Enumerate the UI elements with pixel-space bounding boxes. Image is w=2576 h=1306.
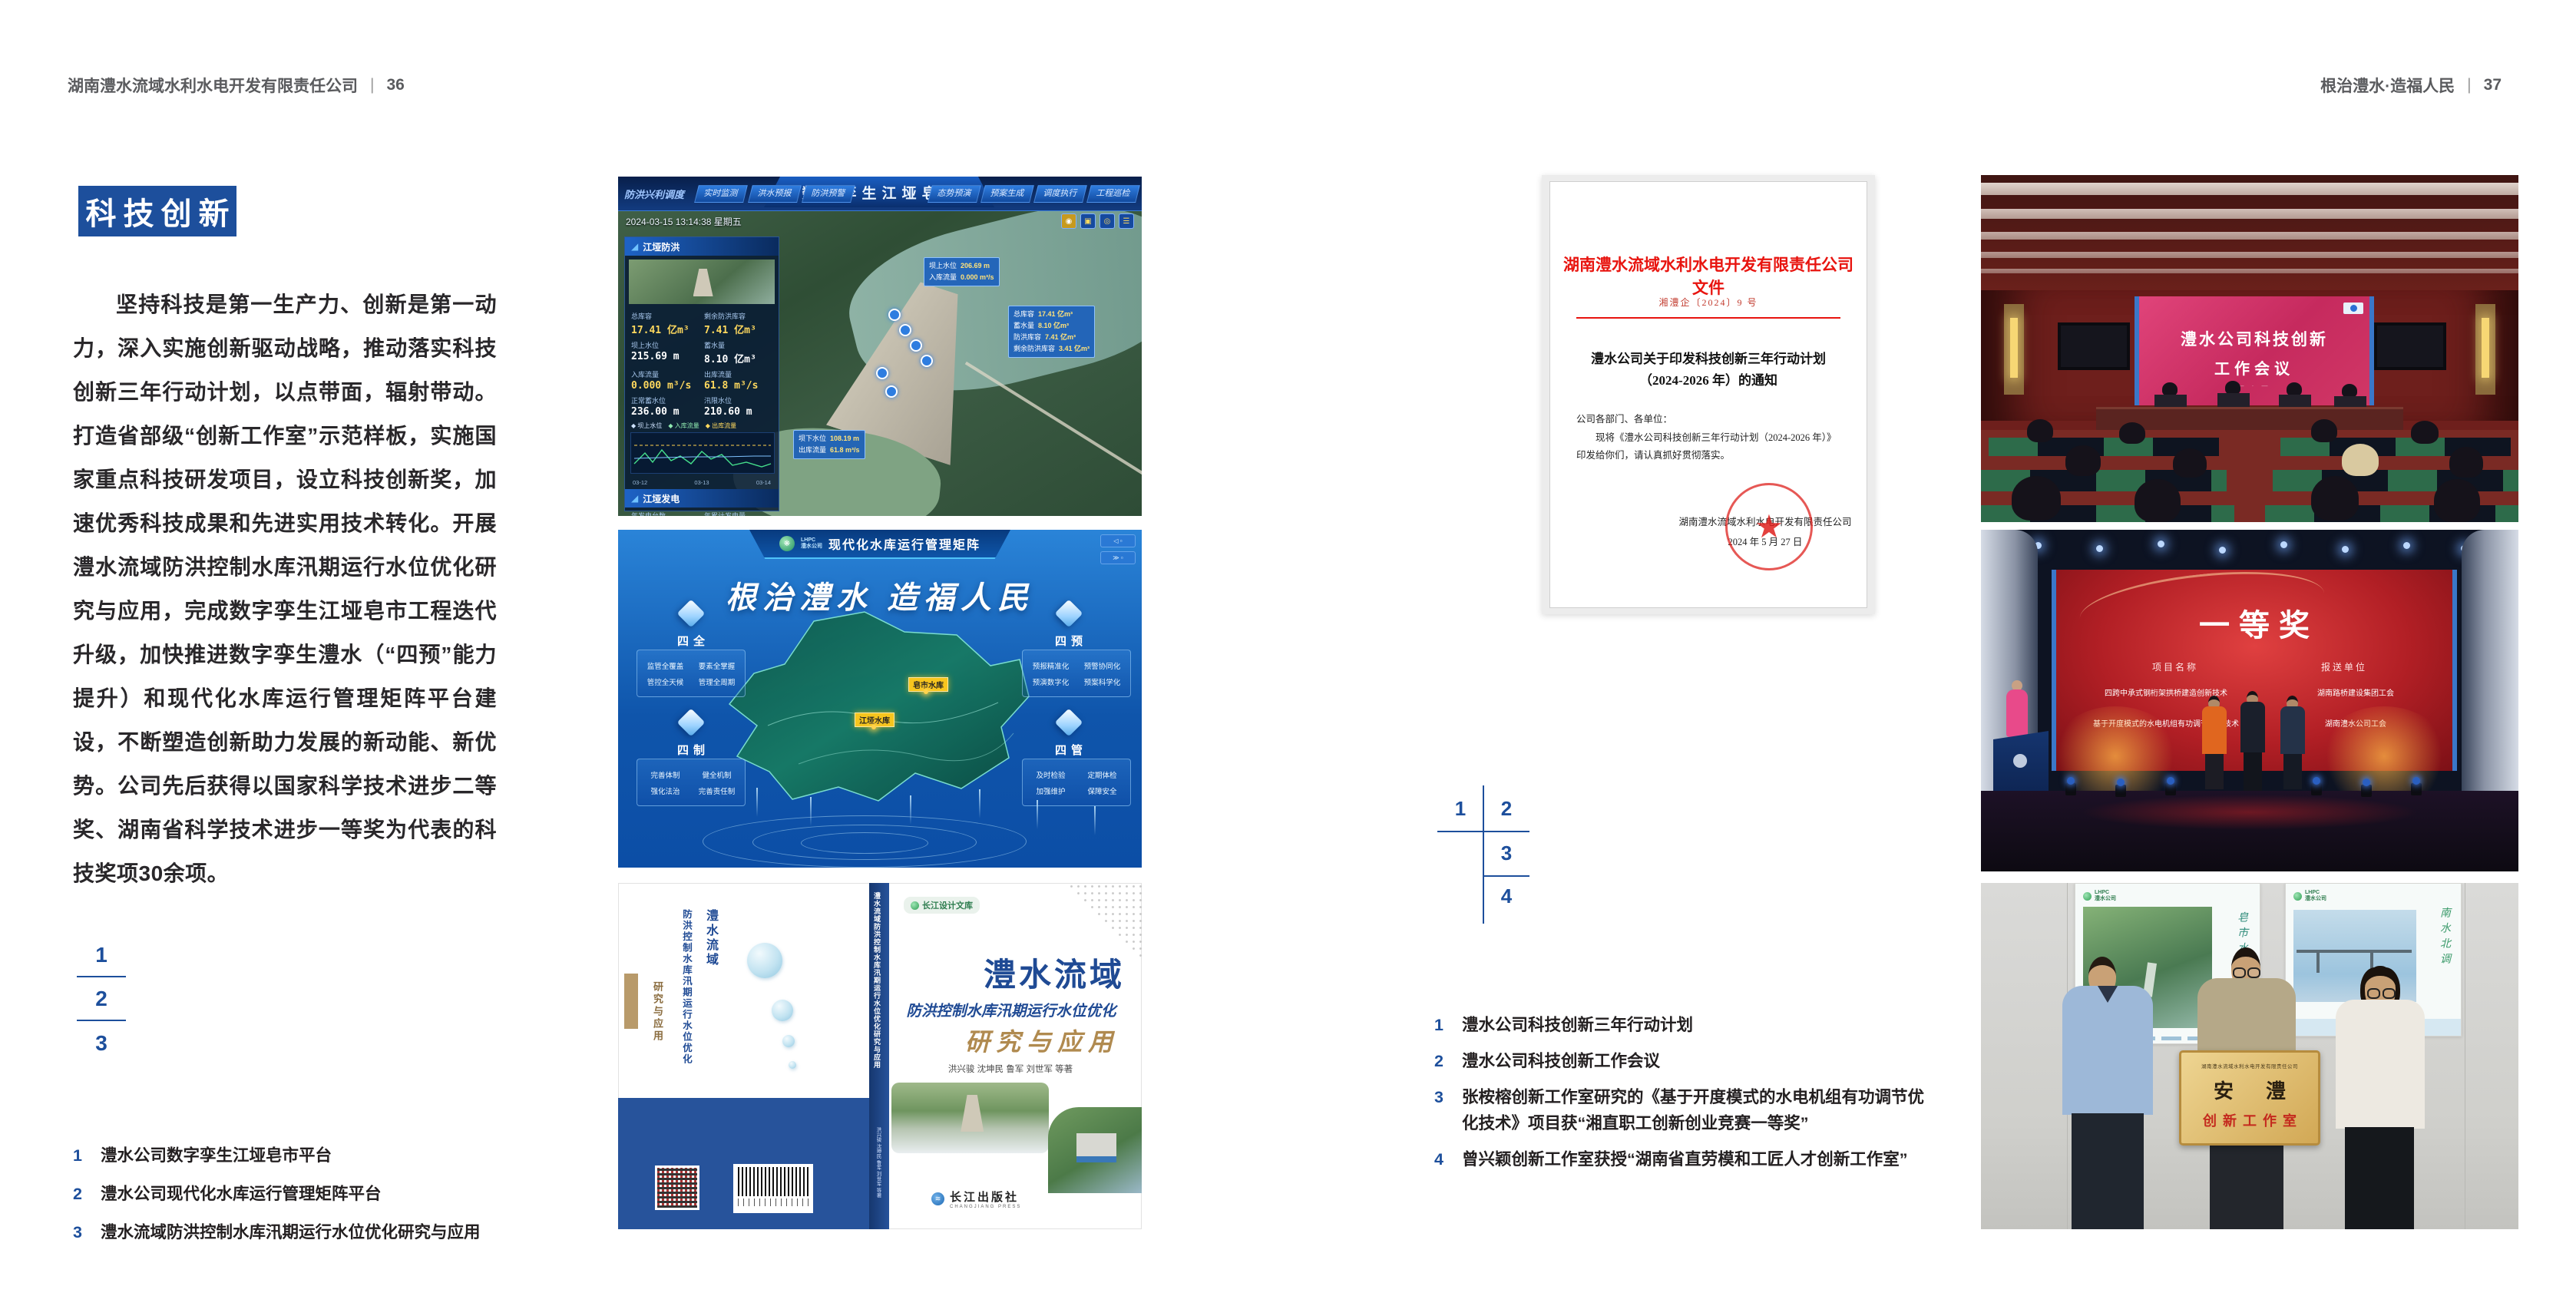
stat-value: 215.69 m [631,351,699,362]
document-salutation: 公司各部门、各单位： [1576,411,1840,428]
book-authors: 洪兴骏 沈坤民 鲁军 刘世军 等著 [888,1063,1133,1075]
poster-bridge-image [2293,910,2416,1002]
plaque-company-line: 湖南澧水流域水利水电开发有限责任公司 [2181,1062,2318,1070]
figure-index-2: 2 [86,987,117,1011]
siguan-icon [1055,709,1083,737]
person-right-shirt [2336,1000,2425,1129]
caption-number: 3 [73,1219,90,1245]
spine-title: 澧水流域防洪控制水库汛期运行水位优化研究与应用 [872,892,882,1122]
dam-thumbnail [629,260,775,304]
barcode [733,1164,813,1213]
lhpc-logo-icon: ❋ [779,536,795,551]
company-name: 湖南澧水流域水利水电开发有限责任公司 [68,74,358,97]
stat-label: 年发电台数 [631,511,699,516]
right-page-header: 根治澧水·造福人民 | 37 [2320,74,2502,97]
lhpc-logo-text: LHPC澧水公司 [801,537,822,550]
index-divider [77,976,126,977]
figure-index-3: 3 [1493,841,1520,865]
stat-value: 236.00 m [631,406,699,418]
caption-text: 澧水公司数字孪生江垭皂市平台 [101,1142,332,1169]
audience-desk-row [2265,505,2518,522]
flood-stats: 总库容17.41 亿m³ 剩余防洪库容7.41 亿m³ 坝上水位215.69 m… [625,308,779,421]
water-droplet [772,1000,793,1021]
photo-innovation-studio-plaque: LHPC澧水公司 皂市水库 LHPC澧水公司 南水北调 [1981,883,2518,1229]
screen-button-icon: ≫ ▫ [1100,551,1136,564]
awardee-legs [2205,754,2224,789]
cover-dam-photo [891,1083,1049,1153]
twin-tabs-right: 态势预演 预案生成 调度执行 工程巡检 [930,185,1138,203]
plaque-subtitle: 创新工作室 [2181,1110,2318,1130]
menu-icon: ☰ [1119,213,1134,229]
matrix-buttons: ◁ ▫ ≫ ▫ [1100,534,1136,564]
award-row-unit: 湖南路桥建设集团工会 [2287,686,2425,698]
gate-marker-dot [876,367,888,379]
legend-item: ◆ 坝上水位 [631,422,662,430]
gate-marker-dot [910,339,922,352]
stat-label: 坝上水位 [631,340,699,350]
upstream-tooltip: 坝上水位206.69 m 入库流量0.000 m³/s [924,257,1000,286]
tab-situation-rehearsal: 态势预演 [928,185,981,203]
group-name-siquan: 四全 [653,633,729,649]
body-paragraph: 坚持科技是第一生产力、创新是第一动力，深入实施创新驱动战略，推动落实科技创新三年… [73,283,497,895]
publisher-name-en: CHANGJIANG PRESS [950,1205,1021,1209]
wall-lamp [2010,318,2018,378]
page-number-left: 36 [386,76,404,94]
wall-tv [2374,322,2446,370]
wall-pillar [2475,304,2495,395]
meeting-screen-line2: 工作会议 [2139,356,2369,379]
wall-tv [2058,322,2130,370]
tab-realtime-monitoring: 实时监测 [694,185,748,203]
stat-label: 出库流量 [704,369,772,379]
innovation-studio-plaque: 湖南澧水流域水利水电开发有限责任公司 安澧 创新工作室 [2179,1050,2320,1146]
chart-x-axis: 03-12 03-13 03-14 [625,479,779,486]
header-separator: | [370,76,374,94]
award-title: 一等奖 [2056,600,2452,645]
gate-marker-dot [899,324,911,336]
flood-panel-title: 江垭防洪 [643,240,680,253]
award-col-project: 项目名称 [2102,660,2248,673]
matrix-title: 现代化水库运行管理矩阵 [828,534,980,553]
back-title-line2: 防洪控制水库汛期运行水位优化 [680,909,694,1093]
lhpc-logo-icon [2083,892,2092,901]
caption-item: 1 澧水公司科技创新三年行动计划 [1434,1012,1945,1038]
floor-reflection [2081,795,2419,830]
twin-hud-icons: ◉ ▣ ◎ ☰ [1061,213,1134,229]
stat-label: 蓄水量 [704,340,772,350]
host-figure [2006,689,2028,737]
tab-dispatch-execution: 调度执行 [1033,185,1087,203]
figure-digital-twin-platform: 数字孪生江垭皂市 防洪兴利调度 实时监测 洪水预报 防洪预警 态势预演 预案生成… [618,177,1142,516]
water-droplet [747,943,782,978]
glasses-icon [2247,967,2260,978]
gate-marker-dot [921,355,933,367]
group-panel-sizhi: 完善体制健全机制 强化法治完善责任制 [637,759,746,806]
road [965,362,1142,486]
meeting-screen-line1: 澧水公司科技创新 [2139,327,2369,350]
caption-text: 澧水公司科技创新工作会议 [1462,1048,1660,1074]
photo-innovation-meeting: 澧水公司科技创新 工作会议 — · — [1981,175,2518,522]
group-name-sizhi: 四制 [653,742,729,758]
wall-lamp [2482,318,2489,378]
gate-marker-dot [885,385,898,398]
glasses-icon [2367,988,2380,999]
stat-value: 61.8 m³/s [704,380,772,392]
book-title-sub: 防洪控制水库汛期运行水位优化 [888,998,1134,1020]
person-right-trousers [2345,1127,2414,1229]
group-panel-siyu: 预报精准化预警协同化 预演数字化预案科学化 [1022,650,1131,697]
matrix-topbar: ❋ LHPC澧水公司 现代化水库运行管理矩阵 [749,530,1010,559]
caption-number: 1 [1434,1012,1451,1038]
document-title-line1: 澧水公司关于印发科技创新三年行动计划 [1566,348,1851,367]
awardee-navy [2280,706,2305,754]
section-title: 科技创新 [78,186,236,236]
water-droplet [782,1035,795,1047]
caption-number: 2 [1434,1048,1451,1074]
page-number-right: 37 [2484,76,2502,94]
panel-icon: ◢ [631,493,638,504]
x-tick: 03-13 [694,479,709,486]
figure-index-2: 2 [1493,797,1520,821]
caption-item: 2 澧水公司科技创新工作会议 [1434,1048,1945,1074]
twin-corner-label: 防洪兴利调度 [624,187,684,201]
awardee-orange [2202,706,2227,754]
x-tick: 03-12 [633,479,647,486]
stat-value: 7.41 亿m³ [704,322,772,336]
power-stats: 年发电台数6.3000 年累计发电量1.2907 月累计发电量3359.21 当… [625,508,779,516]
user-icon: ◉ [1061,213,1076,229]
right-captions: 1 澧水公司科技创新三年行动计划 2 澧水公司科技创新工作会议 3 张桉榕创新工… [1434,1012,1945,1185]
presenter-suit [2240,702,2265,752]
capacity-tooltip: 总库容17.41 亿m³ 蓄水量8.10 亿m³ 防洪库容7.41 亿m³ 剩余… [1008,306,1095,358]
awardee-legs [2283,754,2302,789]
award-col-unit: 报送单位 [2279,660,2409,673]
publisher-icon: ≋ [931,1192,944,1205]
lhpc-logo: LHPC澧水公司 [2083,890,2116,902]
header-separator: | [2467,76,2471,94]
figure-official-document: 湖南澧水流域水利水电开发有限责任公司文件 湘澧企〔2024〕9 号 澧水公司关于… [1542,175,1875,614]
figure-index-3: 3 [86,1031,117,1056]
series-badge-text: 长江设计文库 [922,899,973,911]
stat-label: 年累计发电量 [704,511,772,516]
twin-tabs-left: 实时监测 洪水预报 防洪预警 [696,185,853,203]
gate-marker-dot [888,309,901,321]
caption-item: 4 曾兴颖创新工作室获授“湖南省直劳模和工匠人才创新工作室” [1434,1146,1945,1172]
figure-book-cover: 澧水流域 防洪控制水库汛期运行水位优化 研究与应用 澧水流域防洪控制水库汛期运行… [618,883,1142,1229]
poster-right-caption: 南水北调 [2436,907,2452,1007]
twin-timestamp: 2024-03-15 13:14:38 星期五 [626,215,742,228]
left-captions: 1 澧水公司数字孪生江垭皂市平台 2 澧水公司现代化水库运行管理矩阵平台 3 澧… [73,1142,541,1258]
chart-legend: ◆ 坝上水位 ◆ 入库流量 ◆ 出库流量 [625,421,779,431]
legend-item: ◆ 出库流量 [706,422,736,430]
ripple-ring [801,832,928,854]
document-heading: 湖南澧水流域水利水电开发有限责任公司文件 [1558,253,1859,299]
back-title-line1: 澧水流域 [701,909,719,1086]
caption-item: 3 张桉榕创新工作室研究的《基于开度模式的水电机组有功调节优化技术》项目获“湘直… [1434,1084,1945,1136]
seal-star-icon: ★ [1754,508,1784,546]
glasses-icon [2233,967,2246,978]
spine-authors: 洪兴骏 沈坤民 鲁军 刘世军 等著 [874,1127,881,1204]
cover-dam-photo-2 [1048,1107,1142,1193]
caption-number: 1 [73,1142,90,1169]
person-left-trousers [2072,1113,2144,1229]
stat-label: 入库流量 [631,369,699,379]
audience-desk-row [2273,470,2518,491]
caption-text: 张桉榕创新工作室研究的《基于开度模式的水电机组有功调节优化技术》项目获“湘直职工… [1462,1084,1938,1136]
tab-project-inspection: 工程巡检 [1086,185,1140,203]
group-name-siyu: 四预 [1030,633,1107,649]
figure-index-1: 1 [86,943,117,967]
award-row-project: 四跨中承式钢桁架拱桥建造创新技术 [2070,686,2262,698]
lhpc-logo: LHPC澧水公司 [2293,890,2326,902]
document-body: 现将《澧水公司科技创新三年行动计划（2024-2026 年）》印发给你们，请认真… [1576,429,1840,465]
book-title-main: 澧水流域 [894,949,1125,996]
document-rule [1576,317,1840,319]
glasses-icon [2383,988,2396,999]
back-tan-block [624,974,638,1029]
index-divider [1437,831,1529,832]
caption-text: 曾兴颖创新工作室获授“湖南省直劳模和工匠人才创新工作室” [1462,1146,1908,1172]
document-title-line2: （2024-2026 年）的通知 [1566,369,1851,388]
stat-label: 正常蓄水位 [631,395,699,405]
tab-flood-warning: 防洪预警 [802,185,855,203]
layers-icon: ▣ [1080,213,1096,229]
official-seal: ★ [1725,483,1813,570]
caption-number: 2 [73,1181,90,1207]
downstream-tooltip: 坝下水位108.19 m 出库流量61.8 m³/s [793,430,865,459]
series-badge: 长江设计文库 [904,897,980,914]
presenter-legs [2244,752,2262,791]
water-level-chart [630,432,775,474]
document-paper: 湖南澧水流域水利水电开发有限责任公司文件 湘澧企〔2024〕9 号 澧水公司关于… [1549,181,1867,608]
caption-item: 1 澧水公司数字孪生江垭皂市平台 [73,1142,541,1169]
lhpc-logo-icon [2293,892,2302,901]
publisher-logo: ≋ 长江出版社 CHANGJIANG PRESS [931,1189,1021,1209]
locate-icon: ◎ [1100,213,1115,229]
reservoir-marker-zaoshi: 皂市水库 [908,677,948,692]
tab-flood-forecast: 洪水预报 [748,185,802,203]
stat-label: 总库容 [631,311,699,321]
tab-plan-generation: 预案生成 [980,185,1034,203]
stat-value: 17.41 亿m³ [631,322,699,336]
index-divider [77,1020,126,1021]
caption-text: 澧水公司现代化水库运行管理矩阵平台 [101,1181,382,1207]
caption-text: 澧水流域防洪控制水库汛期运行水位优化研究与应用 [101,1219,481,1245]
group-panel-siquan: 监管全覆盖要素全掌握 管控全天候管理全周期 [637,650,746,697]
figure-index-4: 4 [1493,884,1520,908]
figure-matrix-platform: ❋ LHPC澧水公司 现代化水库运行管理矩阵 ◁ ▫ ≫ ▫ 根治澧水 造福人民… [618,530,1142,868]
stat-value: 210.60 m [704,406,772,418]
x-tick: 03-14 [756,479,771,486]
caption-number: 4 [1434,1146,1451,1172]
marker-dot [871,725,876,729]
index-divider [1483,875,1529,877]
panel-icon: ◢ [631,241,638,252]
group-name-siguan: 四管 [1030,742,1107,758]
plaque-name: 安澧 [2181,1076,2318,1104]
screen-logo [2343,303,2363,314]
left-page-header: 湖南澧水流域水利水电开发有限责任公司 | 36 [68,74,405,97]
wall-joint [2465,883,2465,1229]
person-left-shirt [2062,986,2153,1115]
stat-value: 0.000 m³/s [631,380,699,392]
marker-dot [924,689,928,694]
basin-map [722,610,1038,802]
screen-button-icon: ◁ ▫ [1100,534,1136,547]
figure-index-1: 1 [1447,797,1474,821]
qr-code [655,1165,699,1210]
power-panel-title: 江垭发电 [643,492,680,505]
flood-panel: ◢ 江垭防洪 总库容17.41 亿m³ 剩余防洪库容7.41 亿m³ 坝上水位2… [624,236,779,511]
series-logo-icon [911,901,919,910]
caption-item: 3 澧水流域防洪控制水库汛期运行水位优化研究与应用 [73,1219,541,1245]
legend-item: ◆ 入库流量 [668,422,699,430]
publisher-name: 长江出版社 [950,1189,1021,1205]
halftone-decoration [1027,883,1142,960]
magazine-spread: 湖南澧水流域水利水电开发有限责任公司 | 36 科技创新 坚持科技是第一生产力、… [0,0,2576,1306]
index-divider-vertical [1483,785,1484,924]
wall-pillar [2004,304,2024,395]
document-number: 湘澧企〔2024〕9 号 [1558,296,1859,309]
caption-item: 2 澧水公司现代化水库运行管理矩阵平台 [73,1181,541,1207]
stat-label: 汛限水位 [704,395,772,405]
book-title-line3: 研究与应用 [888,1023,1119,1058]
water-droplet [789,1061,796,1069]
back-title-line3: 研究与应用 [650,981,665,1066]
sizhi-icon [677,709,706,737]
group-panel-siguan: 及时检验定期体检 加强维护保障安全 [1022,759,1131,806]
caption-text: 澧水公司科技创新三年行动计划 [1462,1012,1693,1038]
caption-number: 3 [1434,1084,1451,1136]
slogan: 根治澧水·造福人民 [2320,74,2455,97]
photo-award-ceremony: 一等奖 项目名称 报送单位 四跨中承式钢桁架拱桥建造创新技术 湖南路桥建设集团工… [1981,530,2518,871]
stat-value: 8.10 亿m³ [704,351,772,365]
stat-label: 剩余防洪库容 [704,311,772,321]
